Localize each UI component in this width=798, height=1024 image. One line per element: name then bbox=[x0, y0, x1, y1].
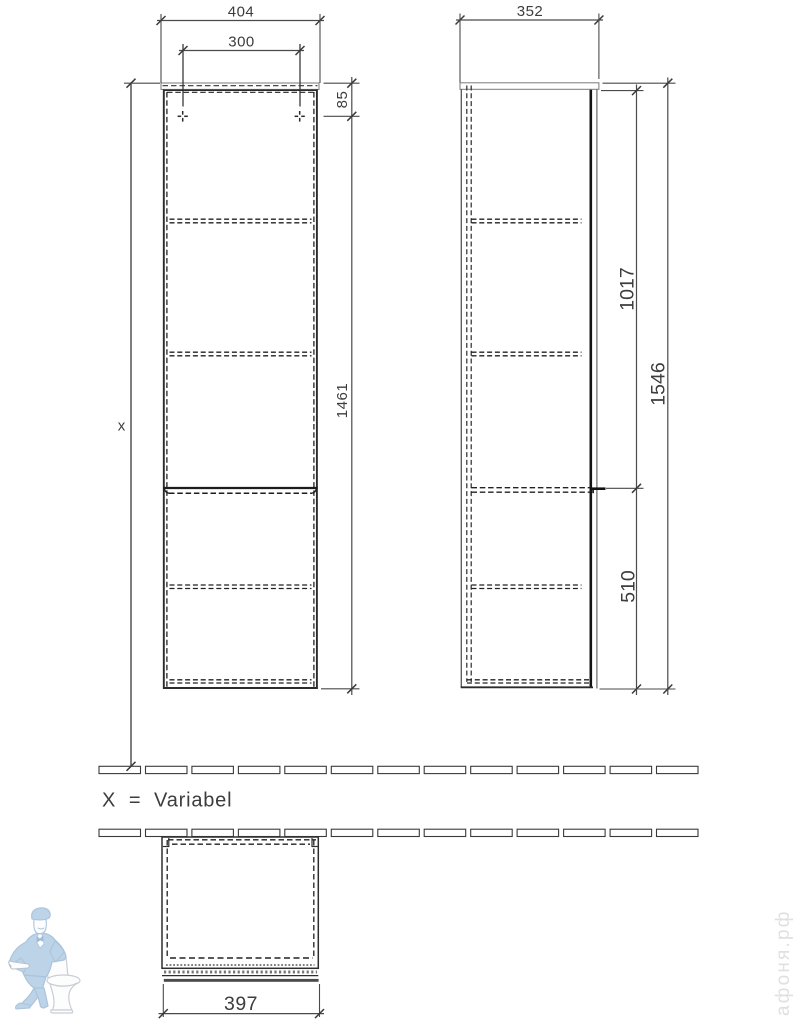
svg-text:X = Variabel: X = Variabel bbox=[102, 790, 232, 812]
svg-text:1461: 1461 bbox=[334, 383, 351, 418]
svg-text:352: 352 bbox=[517, 3, 544, 20]
svg-text:510: 510 bbox=[618, 570, 640, 603]
svg-text:афоня.рф: афоня.рф bbox=[773, 909, 794, 1016]
svg-text:397: 397 bbox=[224, 993, 258, 1015]
svg-text:300: 300 bbox=[228, 34, 255, 51]
svg-text:1017: 1017 bbox=[617, 267, 639, 310]
svg-text:1546: 1546 bbox=[648, 362, 670, 405]
svg-text:x: x bbox=[118, 418, 126, 435]
svg-text:85: 85 bbox=[334, 91, 351, 109]
svg-text:404: 404 bbox=[228, 4, 255, 21]
